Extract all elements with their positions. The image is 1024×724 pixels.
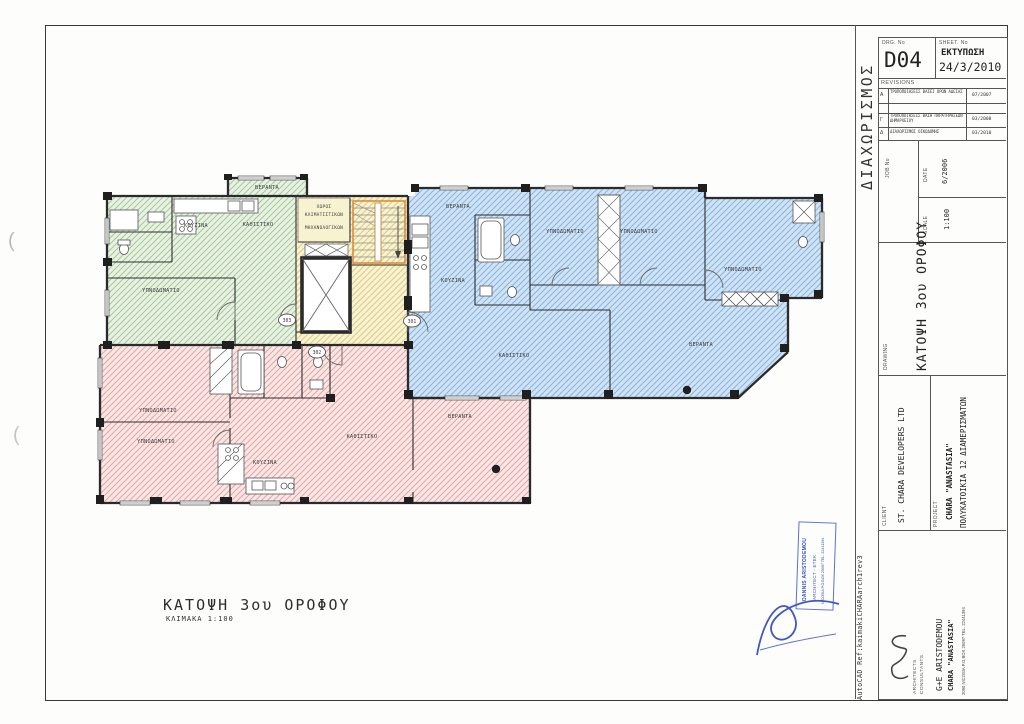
stamp-name: IOANNIS ARISTODEMOU (803, 538, 808, 603)
room-label: ΥΠΝΟΔΩΜΑΤΙΟ (142, 288, 180, 294)
firm-role-consultants: CONSULTANTS (921, 655, 926, 694)
room-label: ΥΠΝΟΔΩΜΑΤΙΟ (137, 439, 175, 445)
room-label: ΒΕΡΑΝΤΑ (255, 185, 280, 191)
project-desc: ΠΟΛΥΚΑΤΟΙΚΙΑ 12 ΔΙΑΜΕΡΙΣΜΑΤΩΝ (960, 397, 968, 528)
unit-number: 302 (313, 350, 322, 356)
stamp-title: ARCHITECT - ΕΤΕΚ (813, 555, 817, 600)
scale-value: 1:100 (944, 209, 951, 230)
room-label: ΥΠΝΟΔΩΜΑΤΙΟ (620, 229, 658, 235)
toilet-icon (508, 287, 517, 298)
room-label: ΚΟΥΖΙΝΑ (441, 278, 466, 284)
unit-number: 301 (408, 319, 417, 325)
drg-no-label: DRG. No (882, 40, 905, 46)
column-dot (492, 465, 500, 473)
room-label: ΚΛΙΜΑΤΙΣΤΙΚΩΝ (305, 212, 343, 218)
vent-shaft (305, 244, 348, 256)
room-label: ΒΕΡΑΝΤΑ (689, 342, 714, 348)
drawing-label: DRAWING (884, 343, 889, 370)
revision-date: 03/2008 (972, 117, 991, 122)
room-label: ΥΠΝΟΔΩΜΑΤΙΟ (546, 229, 584, 235)
project-label: PROJECT (934, 501, 939, 527)
room-label: ΜΗΧΑΝΟΛΟΓΙΚΩΝ (305, 225, 343, 231)
room-label: ΥΠΝΟΔΩΜΑΤΙΟ (724, 267, 762, 273)
firm-address: 2090 NICOSIA P.O.BOX 25097 TEL. 22441394 (962, 607, 966, 695)
revision-id: Γ (880, 117, 883, 123)
client-label: CLIENT (883, 506, 888, 526)
toilet-icon (799, 237, 808, 248)
date-label: DATE (924, 167, 929, 182)
revision-date: 03/2010 (972, 131, 991, 136)
revisions-title: REVISIONS (881, 80, 915, 86)
room-label: ΚΑΘΙΣΤΙΚΟ (347, 434, 378, 440)
revision-id: A (880, 92, 883, 98)
room-label: ΒΕΡΑΝΤΑ (446, 204, 471, 210)
firm-project: CHARA "ANASTASIA" (948, 619, 955, 691)
firm-logo (884, 632, 914, 684)
room-label: ΚΟΥΖΙΝΑ (253, 460, 278, 466)
job-no-label: JOB No (886, 158, 891, 178)
plan-caption-scale: ΚΛΙΜΑΚΑ 1:100 (166, 615, 234, 623)
client-value: ST. CHARA DEVELOPERS LTD (898, 407, 906, 523)
firm-role-architects: ARCHITECTS (914, 659, 919, 694)
date-value: 6/2006 (942, 159, 949, 184)
room-label: ΚΑΘΙΣΤΙΚΟ (243, 222, 274, 228)
revision-id: Δ (880, 130, 883, 136)
revision-date: 07/2007 (972, 93, 991, 98)
closet-strip (598, 195, 620, 285)
elevator (302, 258, 350, 332)
print-label: ΕΚΤΥΠΩΣΗ (941, 48, 984, 58)
balcony-railing (722, 292, 778, 306)
column-dot (683, 386, 691, 394)
stamp-address: NICOSIA P.O.BOX 25097 TEL. 22441394 (822, 538, 826, 604)
unit-number: 303 (283, 318, 292, 324)
room-label: ΒΕΡΑΝΤΑ (448, 414, 473, 420)
room-label: ΚΟΥΖΙΝΑ (184, 223, 209, 229)
autocad-ref: AutoCAD Ref:kaimakiCHARAarch1rev3 (857, 555, 864, 700)
room-label: ΧΩΡΟΣ (317, 204, 332, 210)
room-label: ΥΠΝΟΔΩΜΑΤΙΟ (139, 408, 177, 414)
drawing-title: ΚΑΤΟΨΗ 3ου ΟΡΟΦΟΥ (916, 221, 929, 371)
revision-desc: ΤΡΟΠΟΠΟΙΗΣΕΙΣ ΒΑΣΕΙ ΟΡΩΝ ΑΔΕΙΑΣ (890, 90, 964, 95)
toilet-icon (511, 235, 520, 246)
toilet-icon (278, 357, 287, 368)
margin-label: ΔΙΑΧΩΡΙΣΜΟΣ (860, 63, 875, 190)
revision-desc: ΔΙΑΧΩΡΙΣΜΟΣ ΟΙΚΟΔΟΜΗΣ (890, 130, 964, 135)
firm-name: G+E ARISTODEMOU (936, 619, 944, 691)
plan-caption-title: ΚΑΤΟΨΗ 3ου ΟΡΟΦΟΥ (163, 596, 351, 614)
sheet-no-label: SHEET. No (939, 40, 968, 46)
drg-no-value: D04 (884, 48, 922, 72)
signature-tail (760, 634, 836, 650)
project-name: CHARA "ANASTASIA" (946, 443, 954, 520)
stairs (353, 201, 405, 263)
room-label: ΚΑΘΙΣΤΙΚΟ (499, 353, 530, 359)
drawing-sheet: ( ( (0, 0, 1024, 724)
print-date: 24/3/2010 (939, 60, 1001, 74)
revision-desc: ΤΡΟΠΟΠΟΙΗΣΕΙΣ ΒΑΣΗ ΠΑΡΑΤΗΡΗΣΕΩΝ ΔΗΜΑΡΧΕΙ… (890, 114, 964, 123)
